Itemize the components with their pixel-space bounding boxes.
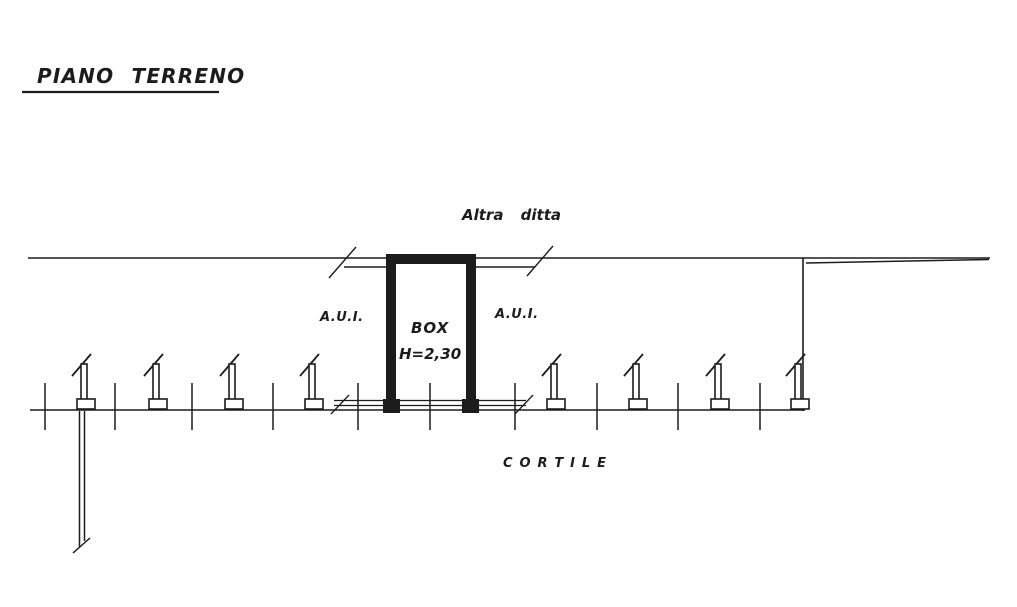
gate-lines xyxy=(331,395,533,414)
upper-boundary-line xyxy=(28,258,990,263)
fence-post xyxy=(624,354,647,409)
fence-post xyxy=(220,354,243,409)
box-door-jamb-right xyxy=(462,399,479,413)
aui-label-left: A.U.I. xyxy=(320,310,364,325)
break-mark-left xyxy=(329,247,386,278)
neighbor-label: Altra ditta xyxy=(462,206,561,224)
descending-wall-line xyxy=(73,411,90,553)
floor-plan-canvas: PIANO TERRENO Altra ditta A.U.I. A.U.I. … xyxy=(0,0,1017,607)
box-height-label: H=2,30 xyxy=(399,345,461,363)
fence-post xyxy=(786,354,809,409)
plan-title: PIANO TERRENO xyxy=(37,64,245,88)
fence-post xyxy=(144,354,167,409)
fence-post xyxy=(706,354,729,409)
gate-end-slash-right xyxy=(515,395,533,414)
box-door-jamb-left xyxy=(383,399,400,413)
box-label: BOX xyxy=(411,319,449,337)
floor-plan-linework xyxy=(0,0,1017,607)
fence-post xyxy=(72,354,95,409)
aui-label-right: A.U.I. xyxy=(495,307,539,322)
fence-post xyxy=(300,354,323,409)
gate-end-slash-left xyxy=(331,395,349,414)
courtyard-label: C O R T I L E xyxy=(503,456,607,471)
fence-post xyxy=(542,354,565,409)
break-mark-right xyxy=(476,246,553,276)
